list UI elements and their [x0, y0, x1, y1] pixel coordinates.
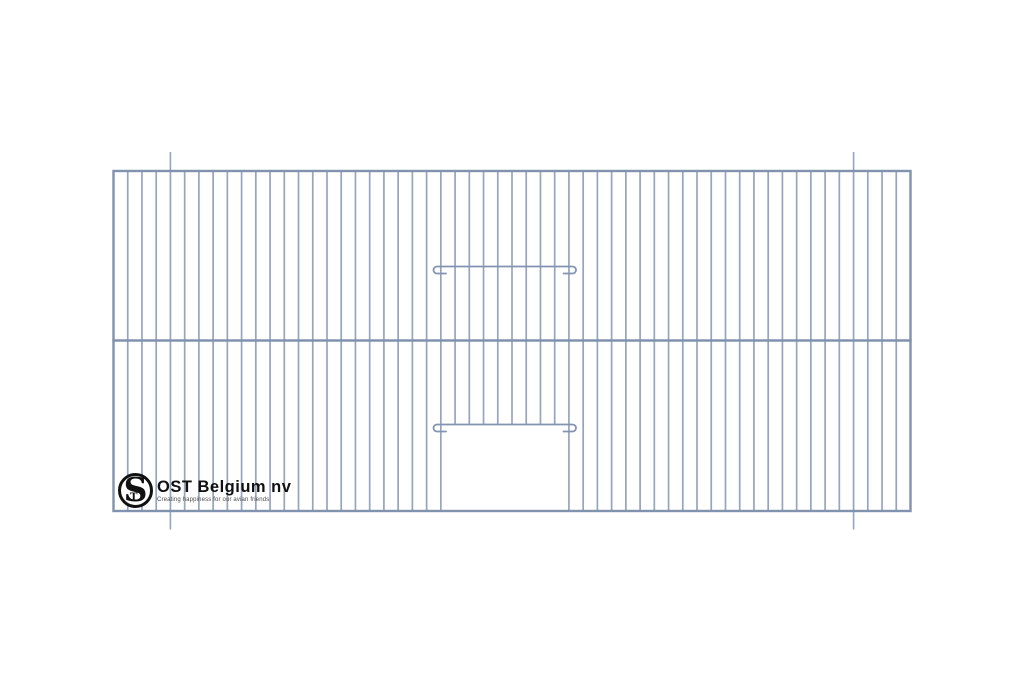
monogram-letter-t: T [130, 493, 137, 503]
cage-front-panel-drawing [0, 0, 1024, 683]
ost-logo: S T OST Belgium nv Creating happiness fo… [117, 472, 291, 510]
ost-monogram-icon: S T [117, 472, 155, 510]
company-name: OST Belgium nv [157, 479, 291, 495]
monogram-letter-s: S [117, 470, 154, 510]
company-tagline: Creating happiness for our avian friends [157, 497, 291, 504]
drawing-canvas: S T OST Belgium nv Creating happiness fo… [0, 0, 1024, 683]
logo-text-block: OST Belgium nv Creating happiness for ou… [157, 472, 291, 504]
